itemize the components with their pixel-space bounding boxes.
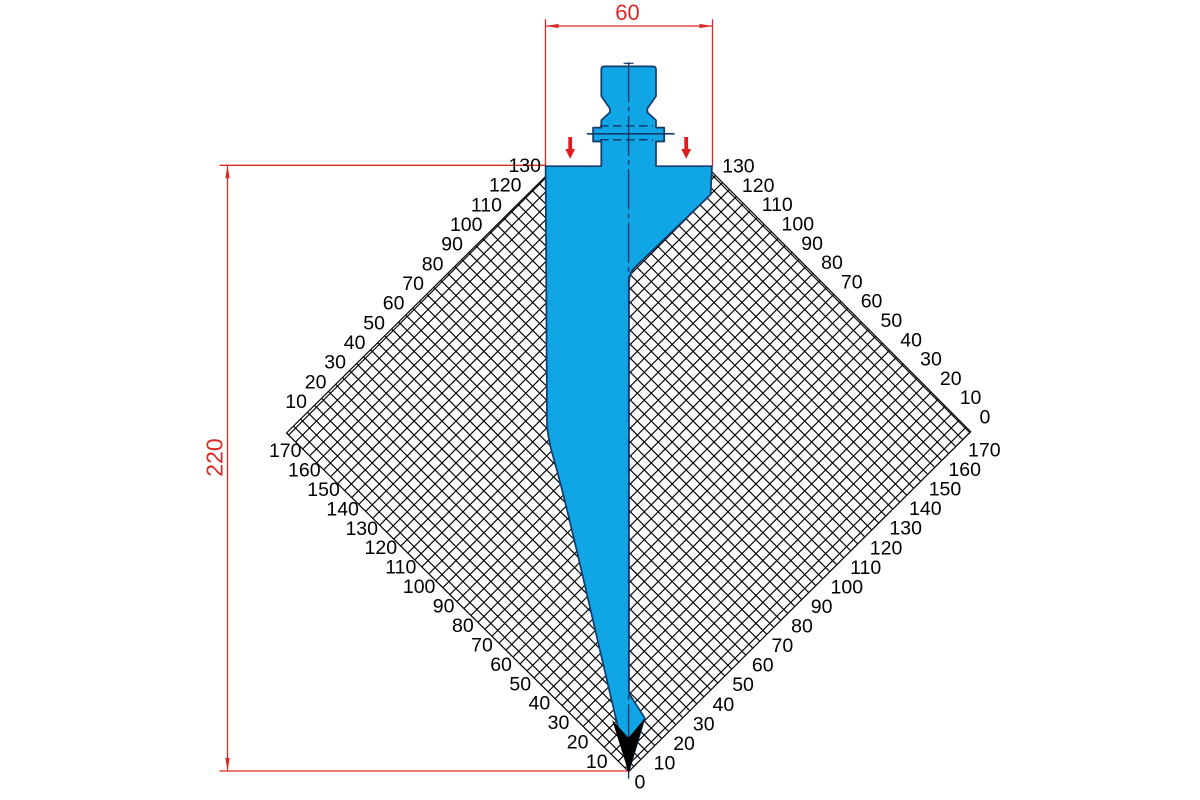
svg-text:100: 100 bbox=[831, 576, 864, 598]
svg-text:40: 40 bbox=[713, 694, 735, 716]
svg-text:120: 120 bbox=[489, 175, 522, 197]
svg-text:90: 90 bbox=[441, 234, 463, 256]
svg-text:60: 60 bbox=[615, 0, 639, 25]
svg-text:90: 90 bbox=[811, 596, 833, 618]
svg-text:40: 40 bbox=[344, 332, 366, 354]
svg-text:50: 50 bbox=[363, 312, 385, 334]
svg-text:70: 70 bbox=[772, 635, 794, 657]
svg-text:80: 80 bbox=[821, 252, 843, 274]
svg-text:120: 120 bbox=[742, 175, 775, 197]
svg-text:70: 70 bbox=[841, 271, 863, 293]
svg-text:50: 50 bbox=[732, 674, 754, 696]
svg-text:40: 40 bbox=[900, 329, 922, 351]
svg-text:20: 20 bbox=[305, 371, 327, 393]
svg-text:30: 30 bbox=[693, 713, 715, 735]
svg-text:50: 50 bbox=[881, 310, 903, 332]
svg-text:10: 10 bbox=[285, 391, 307, 413]
svg-text:130: 130 bbox=[722, 156, 755, 178]
svg-text:30: 30 bbox=[920, 349, 942, 371]
svg-text:100: 100 bbox=[450, 214, 483, 236]
svg-text:110: 110 bbox=[762, 194, 793, 216]
svg-text:110: 110 bbox=[471, 194, 502, 216]
svg-text:30: 30 bbox=[324, 352, 346, 374]
svg-text:10: 10 bbox=[960, 387, 982, 409]
svg-text:70: 70 bbox=[402, 273, 424, 295]
svg-text:100: 100 bbox=[782, 214, 815, 236]
svg-text:10: 10 bbox=[586, 751, 608, 773]
svg-text:20: 20 bbox=[673, 733, 695, 755]
svg-text:60: 60 bbox=[752, 655, 774, 677]
svg-text:220: 220 bbox=[202, 438, 228, 476]
svg-text:90: 90 bbox=[801, 233, 823, 255]
svg-text:60: 60 bbox=[861, 291, 883, 313]
svg-text:130: 130 bbox=[508, 155, 541, 177]
svg-text:100: 100 bbox=[403, 576, 436, 598]
svg-text:10: 10 bbox=[654, 753, 676, 775]
svg-text:60: 60 bbox=[383, 293, 405, 315]
svg-text:0: 0 bbox=[980, 407, 991, 429]
svg-text:0: 0 bbox=[635, 772, 646, 794]
svg-text:80: 80 bbox=[791, 616, 813, 638]
svg-text:20: 20 bbox=[940, 368, 962, 390]
svg-text:80: 80 bbox=[422, 253, 444, 275]
